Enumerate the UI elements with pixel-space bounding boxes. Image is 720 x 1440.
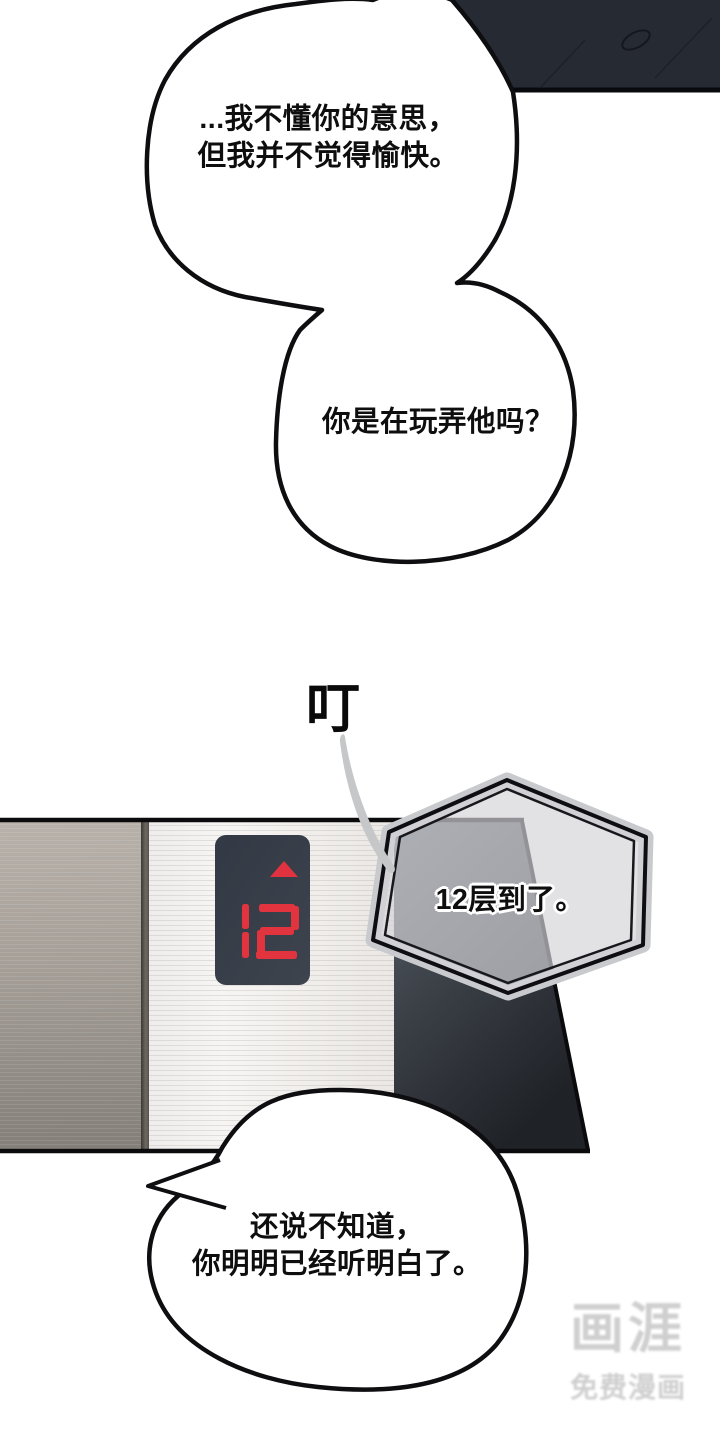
- arrival-announcement-text: 12层到了。: [400, 877, 620, 918]
- watermark-logo: 画涯: [548, 1300, 708, 1358]
- speech-line: 但我并不觉得愉快。: [167, 138, 489, 175]
- speech-bubble-1-and-2-outline: [147, 0, 575, 562]
- speech-bubble-2-text: 你是在玩弄他吗？: [278, 404, 598, 440]
- comic-page: ...我不懂你的意思， 但我并不觉得愉快。 你是在玩弄他吗？ 叮 12层到了。 …: [0, 0, 720, 1440]
- speech-bubble-3-text: 还说不知道， 你明明已经听明白了。: [177, 1209, 497, 1283]
- watermark: 画涯 免费漫画: [548, 1300, 708, 1406]
- speech-bubble-1-text: ...我不懂你的意思， 但我并不觉得愉快。: [167, 101, 489, 175]
- watermark-tagline: 免费漫画: [548, 1366, 708, 1406]
- speech-line: 你明明已经听明白了。: [177, 1246, 497, 1283]
- speech-line: 还说不知道，: [177, 1209, 497, 1246]
- floor-indicator-display: [215, 835, 310, 985]
- speech-line: 你是在玩弄他吗？: [278, 404, 598, 440]
- sfx-ding-text: 叮: [283, 664, 383, 743]
- speech-line: ...我不懂你的意思，: [167, 101, 489, 138]
